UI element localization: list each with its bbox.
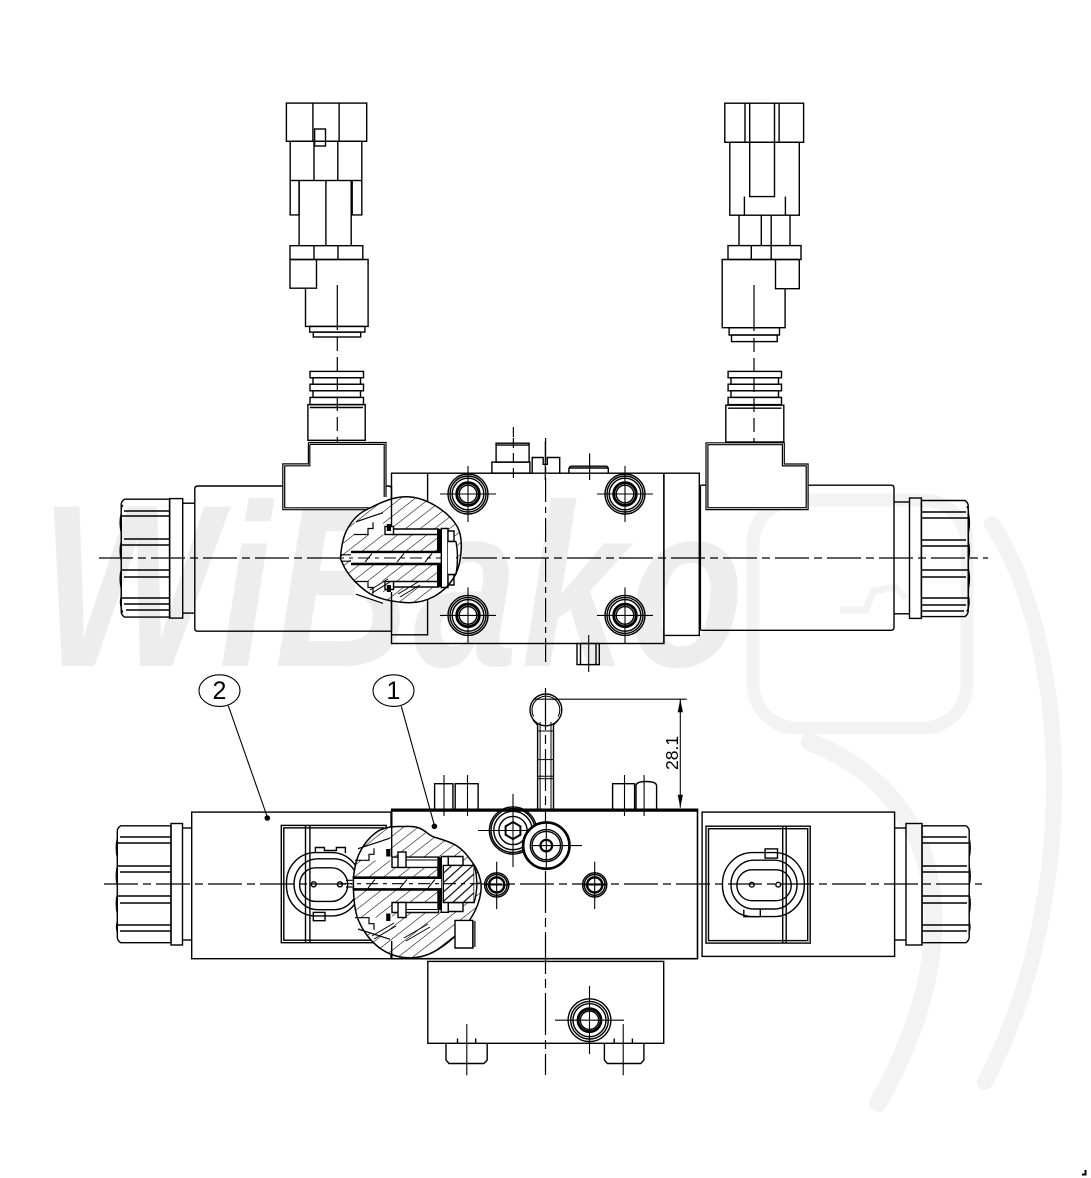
svg-text:28.1: 28.1 xyxy=(662,736,682,770)
svg-text:2: 2 xyxy=(213,677,227,705)
svg-text:1: 1 xyxy=(387,677,401,705)
